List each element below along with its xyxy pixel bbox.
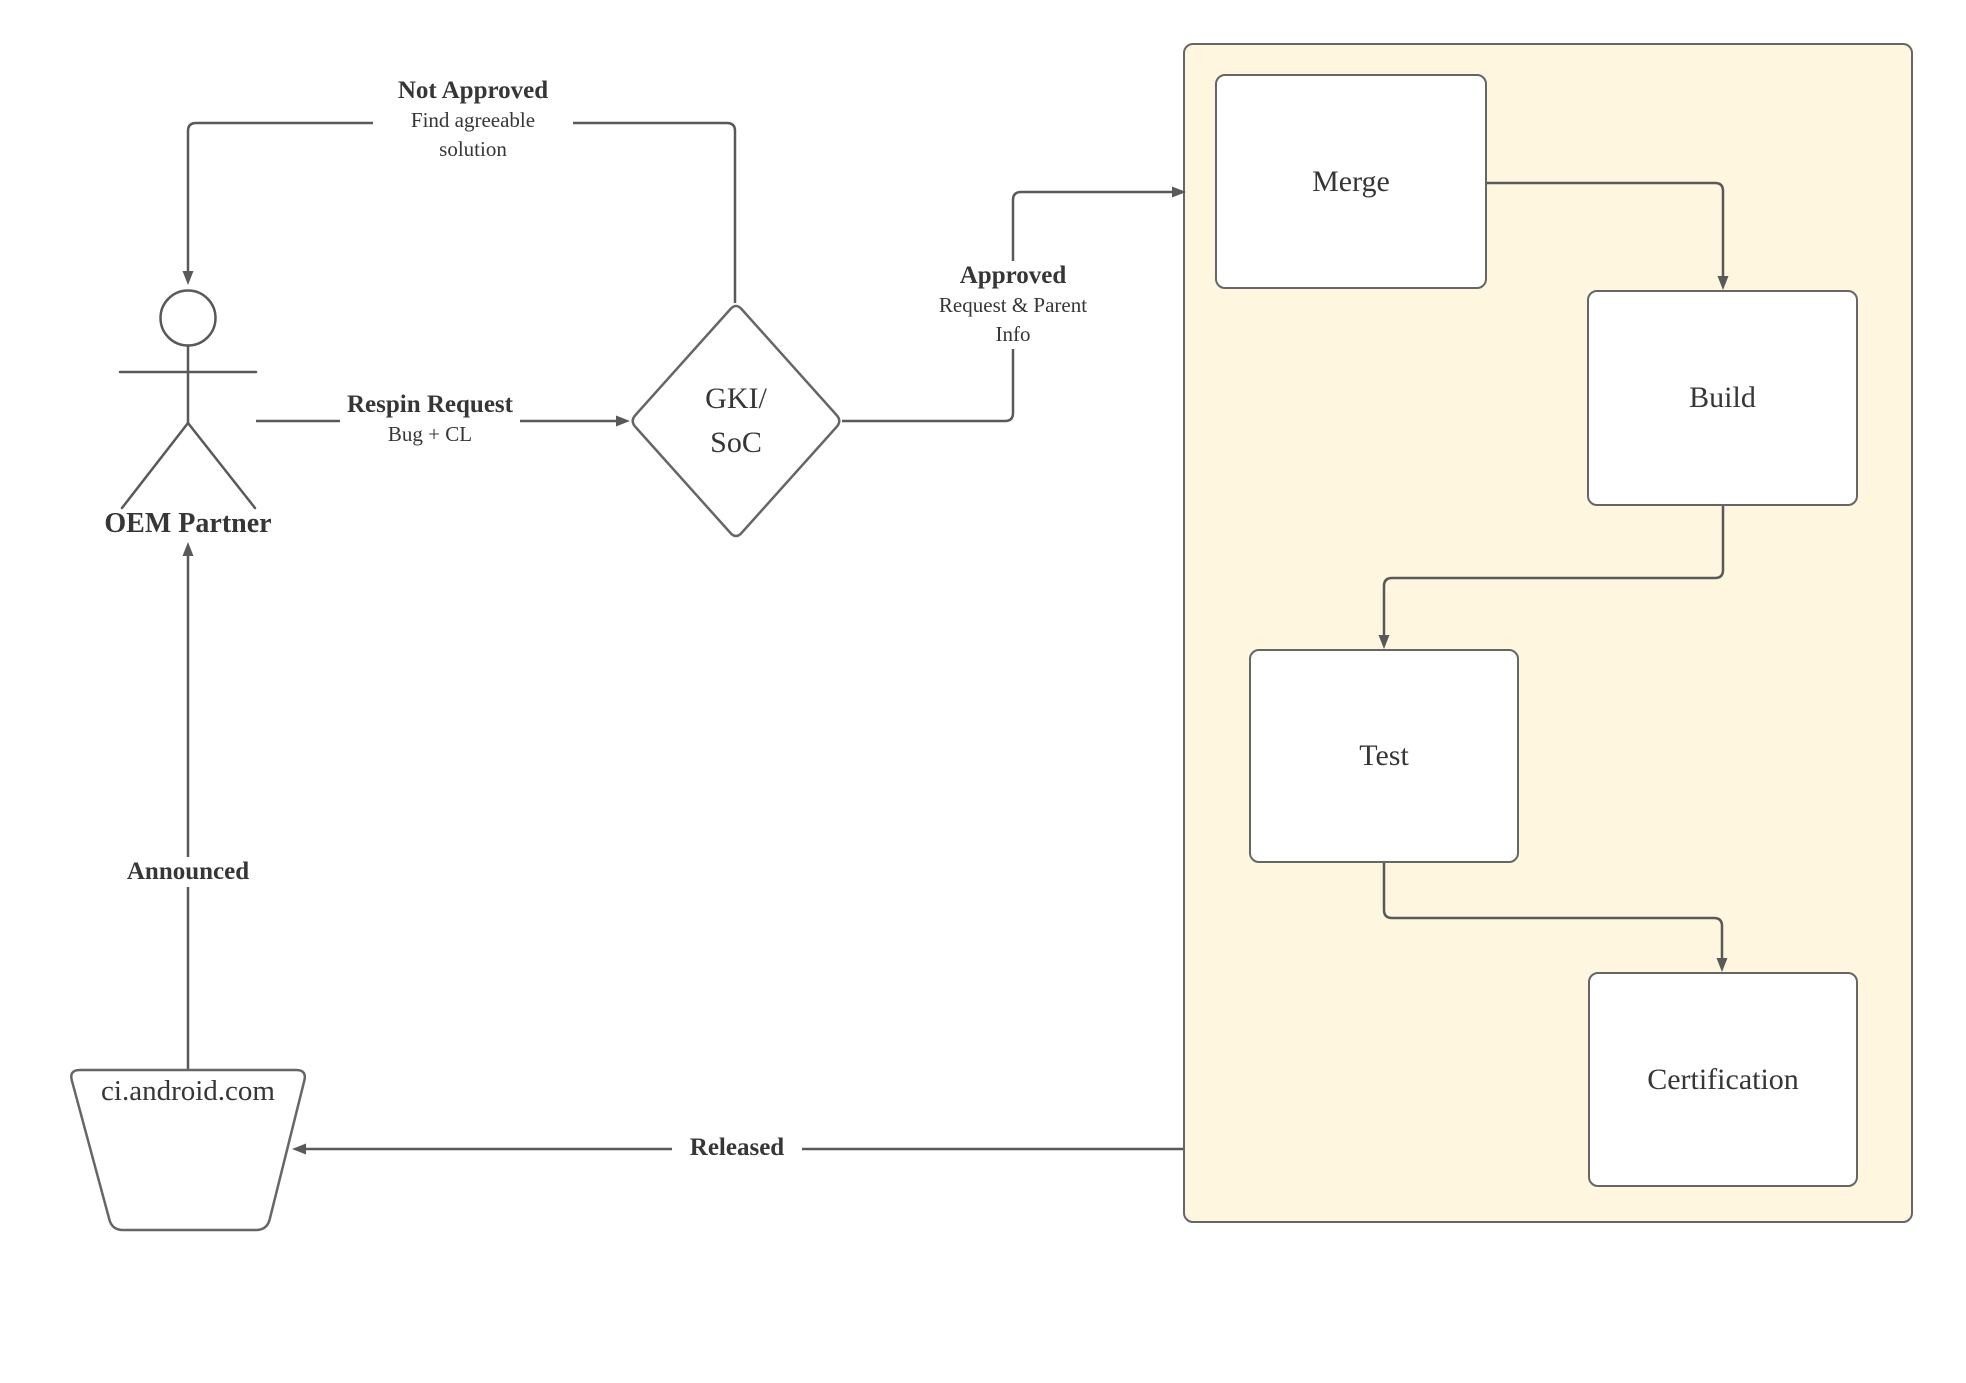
edge-label-announced-title: Announced [118,857,258,887]
actor-head [161,291,216,346]
edge-test-certification-arrowhead [1717,958,1728,972]
actor-leg-left [122,423,188,508]
edge-label-approved-title: Approved [913,261,1113,291]
datastore-ci-android-label: ci.android.com [69,1074,307,1108]
edge-label-not-approved-subtitle-line1: Find agreeable [411,108,535,132]
edge-label-respin-request-title: Respin Request [340,390,520,420]
edge-label-approved: Approved Request & Parent Info [913,261,1113,349]
edge-label-released: Released [672,1133,802,1163]
actor-oem-partner [120,291,256,509]
actor-label-text: OEM Partner [104,508,271,539]
edge-not-approved-arrowhead [183,271,194,285]
edge-released-arrowhead [292,1144,306,1155]
edge-label-released-title: Released [672,1133,802,1163]
edge-label-approved-subtitle-line2: Info [996,322,1031,346]
edge-build-test-arrowhead [1379,635,1390,649]
edge-test-certification [1384,863,1728,972]
edge-build-test-path [1384,506,1723,635]
edge-announced [183,542,194,1070]
edge-label-approved-subtitle: Request & Parent Info [913,291,1113,349]
actor-oem-partner-label: OEM Partner [68,509,308,539]
edge-label-approved-subtitle-line1: Request & Parent [939,293,1087,317]
edge-label-not-approved-subtitle-line2: solution [439,137,507,161]
node-merge: Merge [1215,74,1487,289]
edge-label-not-approved-subtitle: Find agreeable solution [373,106,573,164]
node-test: Test [1249,649,1519,863]
edge-label-not-approved: Not Approved Find agreeable solution [373,76,573,164]
actor-leg-right [188,423,255,508]
edge-label-announced: Announced [118,857,258,887]
flowchart-canvas: Merge Build Test Certification GKI/ SoC … [0,0,1966,1383]
edge-respin-request-arrowhead [616,416,630,427]
edge-test-certification-path [1384,863,1722,958]
edge-approved-arrowhead [1172,187,1186,198]
edge-label-not-approved-title: Not Approved [373,76,573,106]
node-build-label: Build [1689,380,1756,416]
node-certification: Certification [1588,972,1858,1187]
decision-gki-soc-label: GKI/ SoC [630,303,842,539]
decision-label-line1: GKI/ [705,377,767,421]
edge-label-respin-request: Respin Request Bug + CL [340,390,520,449]
node-merge-label: Merge [1312,164,1390,200]
edge-build-test [1379,506,1724,649]
node-build: Build [1587,290,1858,506]
edge-merge-build-arrowhead [1718,276,1729,290]
edge-merge-build-path [1487,183,1723,276]
decision-label-line2: SoC [710,421,762,465]
edge-merge-build [1487,183,1729,290]
edge-announced-arrowhead [183,542,194,556]
node-certification-label: Certification [1647,1062,1799,1098]
node-test-label: Test [1359,738,1409,774]
datastore-label-text: ci.android.com [101,1075,275,1107]
edge-label-respin-request-subtitle: Bug + CL [340,420,520,449]
